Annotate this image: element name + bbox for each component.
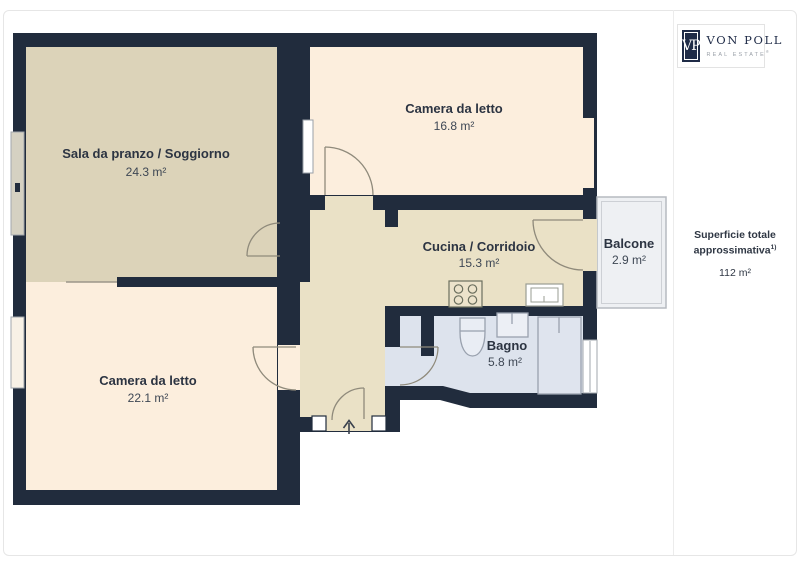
living-corner-wall: [277, 255, 310, 282]
kitchen-corridor-name: Cucina / Corridoio: [423, 239, 536, 254]
corridor-t-stub-wall: [385, 210, 398, 227]
bathroom-name: Bagno: [487, 338, 528, 353]
summary-title-line2: approssimativa1): [675, 243, 795, 258]
entrance-jamb-left: [312, 416, 326, 431]
shower-icon: [538, 317, 581, 394]
corridor-lower-floor: [300, 255, 385, 417]
living-bedroom-divider-wall: [117, 277, 277, 287]
stove-icon: [449, 281, 482, 307]
total-area-summary: Superficie totale approssimativa1) 112 m…: [675, 228, 795, 279]
logo-text: VON POLL REAL ESTATE®: [707, 34, 784, 57]
floor-plan: Sala da pranzo / Soggiorno 24.3 m² Camer…: [0, 0, 675, 565]
von-poll-logo: VP VON POLL REAL ESTATE®: [677, 24, 765, 68]
summary-title-line1: Superficie totale: [675, 228, 795, 243]
window-left-living: [11, 132, 24, 235]
brand-name: VON POLL: [707, 34, 784, 47]
bedroom-bottom-area: 22.1 m²: [128, 391, 169, 405]
bathroom-sink-icon: [497, 313, 528, 337]
floorplan-page: Sala da pranzo / Soggiorno 24.3 m² Camer…: [0, 0, 800, 565]
radiator-bedroom-top: [303, 120, 313, 173]
bedroom-top-area: 16.8 m²: [434, 119, 475, 133]
window-bathroom: [583, 340, 597, 393]
bedroom-bottom-door-gap: [278, 345, 300, 390]
balcony-name: Balcone: [604, 236, 655, 251]
registered-mark: ®: [766, 49, 771, 54]
entrance-jamb-right: [372, 416, 386, 431]
living-room-area: 24.3 m²: [126, 165, 167, 179]
brand-tagline: REAL ESTATE®: [707, 50, 784, 58]
kitchen-sink-icon: [526, 284, 563, 306]
window-niche-bedroom-top: [578, 118, 594, 188]
living-room-name: Sala da pranzo / Soggiorno: [62, 146, 230, 161]
kitchen-corridor-area: 15.3 m²: [459, 256, 500, 270]
toilet-icon: [460, 318, 485, 356]
balcony-area: 2.9 m²: [612, 253, 646, 267]
bathroom-door-gap: [385, 347, 400, 386]
vp-monogram-icon: VP: [682, 30, 700, 62]
footnote-mark: 1): [771, 244, 777, 251]
bedroom-top-door-gap: [325, 196, 373, 210]
bathroom-area: 5.8 m²: [488, 355, 522, 369]
bathroom-stub-wall: [421, 312, 434, 356]
total-area-value: 112 m²: [675, 267, 795, 279]
bedroom-top-name: Camera da letto: [405, 101, 503, 116]
balcony-door-gap: [583, 219, 597, 271]
window-left-bedroom: [11, 317, 24, 388]
bedroom-bottom-name: Camera da letto: [99, 373, 197, 388]
